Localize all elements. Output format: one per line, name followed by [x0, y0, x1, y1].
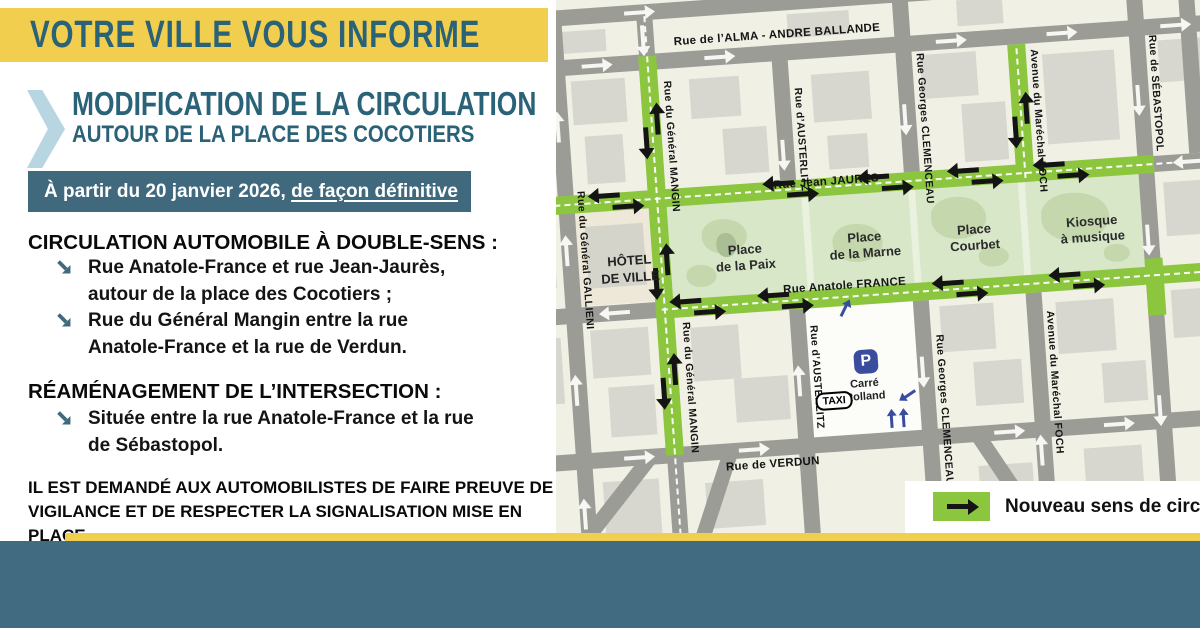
banner-title: VOTRE VILLE VOUS INFORME	[30, 8, 480, 62]
two-way-arrows-icon	[1058, 269, 1105, 292]
building	[1163, 178, 1200, 236]
bullet-item: Située entre la rue Anatole-France et la…	[88, 406, 488, 459]
bullet-arrow-icon	[56, 410, 73, 432]
building	[1171, 286, 1200, 338]
section-heading-double-sens: CIRCULATION AUTOMOBILE À DOUBLE-SENS :	[28, 231, 498, 255]
building	[590, 327, 651, 379]
date-banner-underlined: de façon définitive	[291, 181, 458, 202]
two-way-arrows-icon	[658, 353, 681, 400]
building	[557, 29, 606, 54]
building	[585, 134, 626, 185]
building	[961, 101, 1009, 162]
parking-icon: P	[853, 349, 879, 375]
building	[556, 338, 565, 407]
date-banner: À partir du 20 janvier 2026, de façon dé…	[28, 171, 471, 212]
building	[920, 51, 979, 99]
building	[722, 126, 769, 175]
building	[608, 384, 657, 437]
legend-green-swatch	[933, 492, 990, 521]
bullet-arrow-icon	[56, 312, 73, 334]
building	[811, 71, 872, 123]
building	[690, 324, 742, 381]
two-way-arrows-icon	[598, 190, 645, 213]
two-way-arrows-icon	[679, 295, 726, 318]
bullet-item: Rue du Général Mangin entre la rue Anato…	[88, 308, 488, 361]
bullet-item: Rue Anatole-France et rue Jean-Jaurès, a…	[88, 255, 488, 308]
building	[734, 375, 791, 423]
poster: VOTRE VILLE VOUS INFORME MODIFICATION DE…	[0, 0, 1200, 628]
building	[1102, 360, 1149, 403]
building	[939, 303, 996, 353]
building	[1042, 50, 1120, 145]
legend-arrow-icon	[947, 504, 969, 509]
legend-label: Nouveau sens de circulation	[1005, 481, 1200, 533]
map: Rue de l’ALMA - ANDRE BALLANDE Rue Jean …	[556, 0, 1200, 541]
building	[556, 228, 557, 291]
two-way-arrows-icon	[957, 165, 1004, 188]
building	[973, 359, 1024, 406]
building	[956, 0, 1004, 26]
map-canvas: Rue de l’ALMA - ANDRE BALLANDE Rue Jean …	[556, 0, 1200, 541]
building	[689, 76, 742, 119]
top-banner: VOTRE VILLE VOUS INFORME	[0, 8, 548, 62]
building	[571, 78, 628, 126]
two-way-arrows-icon	[941, 277, 988, 300]
chevron-icon	[27, 90, 65, 168]
building	[1055, 298, 1116, 354]
two-way-arrows-icon	[1010, 92, 1033, 139]
two-way-arrows-icon	[1042, 159, 1089, 182]
section-heading-intersection: RÉAMÉNAGEMENT DE L’INTERSECTION :	[28, 380, 441, 404]
bullet-arrow-icon	[56, 259, 73, 281]
map-legend: Nouveau sens de circulation	[905, 481, 1200, 533]
page-subtitle: AUTOUR DE LA PLACE DES COCOTIERS	[72, 121, 545, 149]
green-intersection-sebastopol	[1144, 258, 1166, 316]
footer-bar: Pour plus d’informations sur le chantier…	[0, 541, 1200, 628]
taxi-badge: TAXI	[815, 391, 853, 412]
two-way-arrows-icon	[640, 102, 663, 149]
building	[827, 133, 869, 170]
city-hall-label: HÔTEL DE VILLE	[589, 249, 671, 288]
